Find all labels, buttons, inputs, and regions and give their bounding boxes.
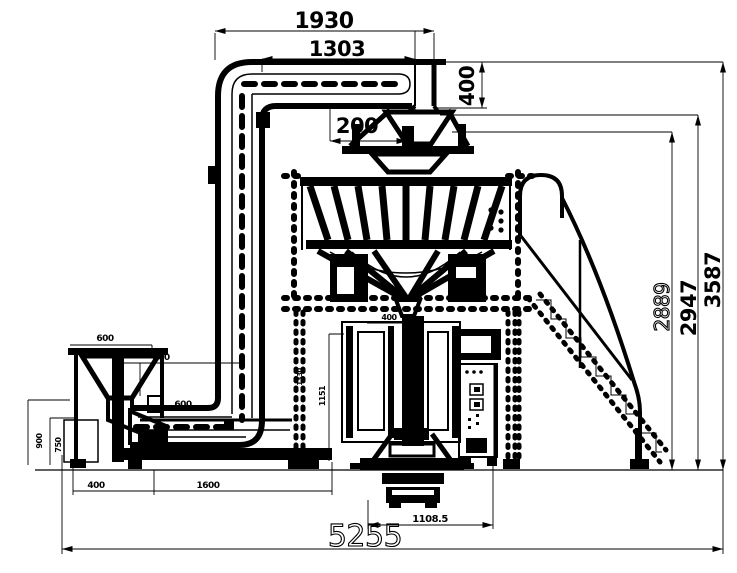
dim-weigher-top-height: 2889 bbox=[650, 283, 674, 332]
dim-feeder-offset: 800 bbox=[152, 353, 170, 363]
dimension-lines bbox=[28, 31, 723, 554]
elevator-side-tab bbox=[208, 166, 218, 184]
dim-top-inner-width: 1303 bbox=[309, 37, 365, 61]
dim-overall-width: 5255 bbox=[328, 519, 402, 554]
dim-feeder-hopper-width: 600 bbox=[96, 334, 114, 344]
dim-bagger-height: 1151 bbox=[318, 385, 327, 406]
dim-elevator-head-height: 400 bbox=[455, 66, 479, 106]
handrail-arch bbox=[520, 175, 562, 236]
dim-feeder-base-a: 400 bbox=[87, 481, 105, 491]
forming-tube bbox=[402, 316, 424, 446]
weigher-mid-ring bbox=[306, 240, 512, 249]
dim-feeder-height-inner: 750 bbox=[54, 436, 63, 452]
stair-steps bbox=[536, 300, 662, 452]
elevator-elbow-fitting bbox=[256, 112, 270, 128]
dim-hopper-offset: 200 bbox=[336, 114, 378, 138]
dim-support-height: 1330 bbox=[296, 368, 304, 386]
machine-elevation-drawing: 1930 1303 400 200 2889 2947 3587 5255 11… bbox=[0, 0, 737, 573]
control-panel bbox=[454, 329, 501, 466]
handrail-outer bbox=[562, 198, 640, 448]
stair-stringer-lower bbox=[528, 298, 660, 462]
feeder-base-frame bbox=[118, 448, 332, 460]
z-elevator-conveyor bbox=[130, 62, 446, 445]
stairs-and-handrail bbox=[519, 175, 666, 469]
weigher-feed-trays bbox=[310, 186, 502, 240]
platform-right-foot bbox=[503, 459, 520, 469]
multihead-weigher bbox=[284, 124, 532, 316]
monitor-screen bbox=[461, 336, 491, 353]
weigher-top-ring bbox=[300, 177, 512, 186]
stair-foot bbox=[630, 459, 649, 469]
dim-feeder-height-outer: 900 bbox=[35, 432, 44, 448]
dim-frame-top-height: 2947 bbox=[677, 280, 701, 336]
stair-stringer-upper bbox=[540, 294, 666, 450]
dim-overall-height: 3587 bbox=[701, 252, 725, 308]
platform-left-foot bbox=[288, 459, 305, 469]
dim-former-width: 400 bbox=[381, 313, 397, 322]
dim-top-width: 1930 bbox=[294, 9, 353, 34]
dim-elevator-base-width: 600 bbox=[174, 400, 192, 410]
dim-feeder-base-b: 1600 bbox=[196, 481, 219, 491]
technical-drawing-canvas: 1930 1303 400 200 2889 2947 3587 5255 11… bbox=[0, 0, 737, 573]
vibratory-drive bbox=[138, 430, 168, 448]
dim-outfeed-width: 1108.5 bbox=[412, 514, 448, 525]
